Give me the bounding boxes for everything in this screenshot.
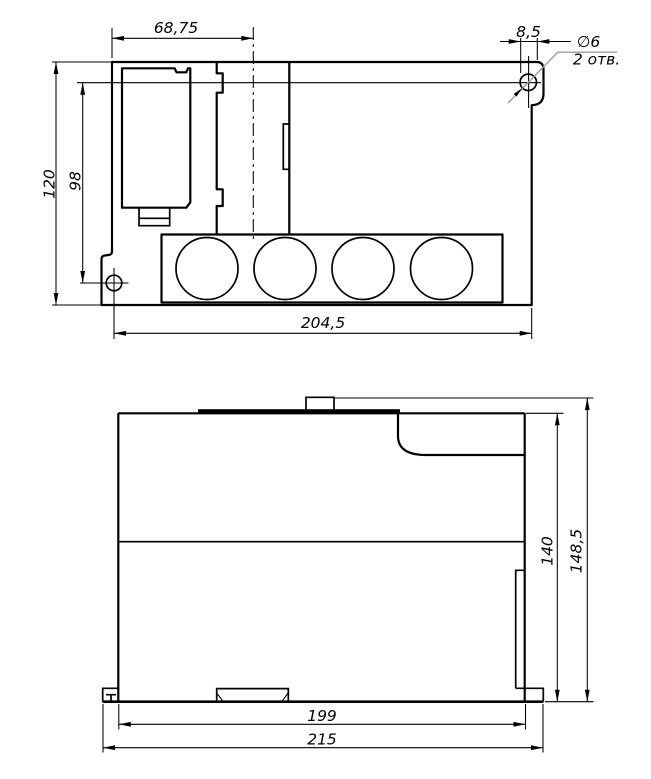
dim-label: 215 — [307, 731, 337, 749]
extension-lines — [52, 28, 541, 339]
drawing-canvas: 68,75 8,5 ∅6 2 отв. 120 98 2 — [0, 0, 651, 779]
dim-199: 199 — [119, 707, 526, 725]
callout-diameter-label: ∅6 — [577, 33, 601, 51]
dim-120: 120 — [41, 62, 59, 305]
dim-98: 98 — [67, 83, 85, 283]
foot-left — [103, 688, 119, 701]
dim-140: 140 — [539, 413, 558, 701]
extension-lines — [103, 398, 594, 753]
callout-count-label: 2 отв. — [573, 51, 620, 69]
top-tab — [306, 397, 334, 409]
dim-label: 204,5 — [301, 314, 345, 332]
opening-circle-3 — [332, 238, 394, 300]
dim-68-75: 68,75 — [112, 19, 253, 38]
body-outline — [118, 413, 524, 701]
bottom-latch-tab — [217, 689, 289, 702]
hole-callout: ∅6 2 отв. — [508, 33, 620, 103]
dim-215: 215 — [103, 731, 543, 749]
technical-drawing: 68,75 8,5 ∅6 2 отв. 120 98 2 — [0, 0, 651, 779]
dim-148-5: 148,5 — [568, 398, 588, 702]
dim-label: 98 — [67, 171, 85, 191]
dim-label: 120 — [41, 169, 59, 199]
opening-circle-1 — [176, 238, 238, 300]
opening-circle-2 — [254, 238, 316, 300]
dim-label: 140 — [539, 536, 557, 566]
dim-label: 148,5 — [568, 529, 586, 573]
front-view: 199 215 140 148,5 — [103, 397, 594, 752]
dim-204-5: 204,5 — [114, 314, 532, 333]
dim-8-5: 8,5 — [500, 23, 571, 42]
dim-label: 68,75 — [154, 19, 198, 37]
component-tab — [139, 208, 170, 226]
part-outline — [102, 62, 544, 305]
component-rectangle — [122, 68, 190, 207]
top-view: 68,75 8,5 ∅6 2 отв. 120 98 2 — [41, 19, 621, 339]
top-plate — [198, 409, 400, 413]
dim-label: 8,5 — [516, 23, 541, 41]
opening-circle-4 — [411, 238, 473, 300]
corner-step — [398, 413, 525, 455]
stepped-profile — [217, 62, 223, 235]
dim-label: 199 — [307, 707, 337, 725]
foot-right — [516, 688, 544, 701]
bottom-latch-chamfers — [217, 693, 289, 702]
side-groove — [516, 570, 525, 688]
